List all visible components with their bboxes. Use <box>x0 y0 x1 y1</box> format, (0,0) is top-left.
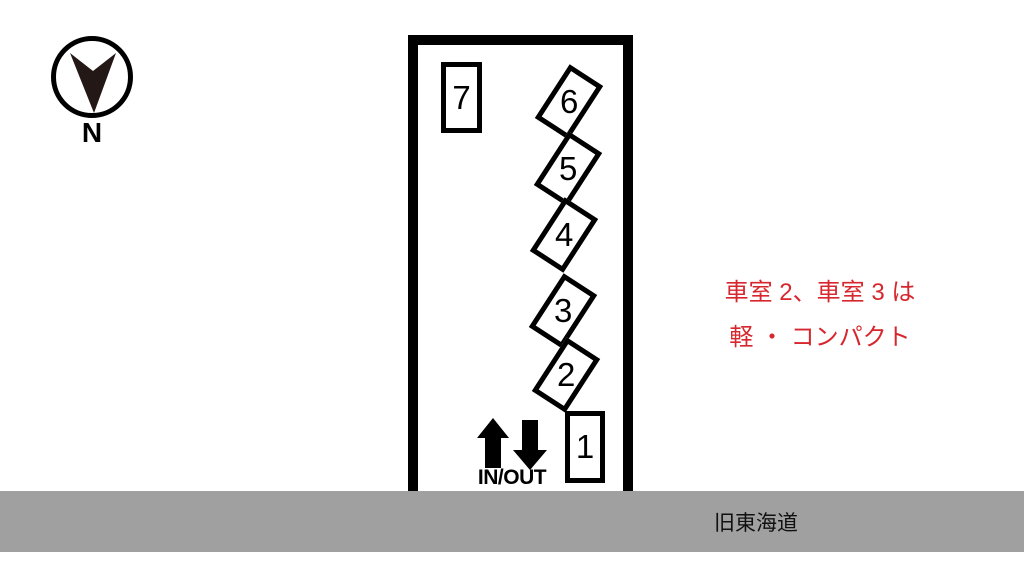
road-name-label: 旧東海道 <box>656 491 856 552</box>
parking-map-page: N 7 6 5 4 3 2 1 IN/OUT 車室 2、車室 3 は 軽 ・ コ… <box>0 0 1024 576</box>
parking-space-number: 1 <box>576 428 594 466</box>
parking-space-1: 1 <box>565 411 605 483</box>
parking-space-number: 2 <box>557 356 575 394</box>
in-out-arrows-icon <box>477 418 547 470</box>
parking-space-number: 5 <box>559 150 577 188</box>
parking-space-number: 4 <box>555 216 573 254</box>
parking-space-number: 6 <box>560 83 578 121</box>
up-arrow-icon <box>477 418 509 468</box>
note-line-1: 車室 2、車室 3 は <box>700 270 940 315</box>
compass-north-label: N <box>51 118 133 148</box>
parking-space-number: 7 <box>452 79 470 117</box>
compass-circle <box>51 36 133 118</box>
in-out-label: IN/OUT <box>464 466 560 490</box>
parking-space-7: 7 <box>441 62 482 133</box>
compact-car-note: 車室 2、車室 3 は 軽 ・ コンパクト <box>700 270 940 360</box>
road-bar: 旧東海道 <box>0 491 1024 552</box>
down-arrow-icon <box>513 420 547 470</box>
compass-south-arrow-icon <box>56 41 128 113</box>
note-line-2: 軽 ・ コンパクト <box>700 315 940 360</box>
parking-space-number: 3 <box>554 292 572 330</box>
